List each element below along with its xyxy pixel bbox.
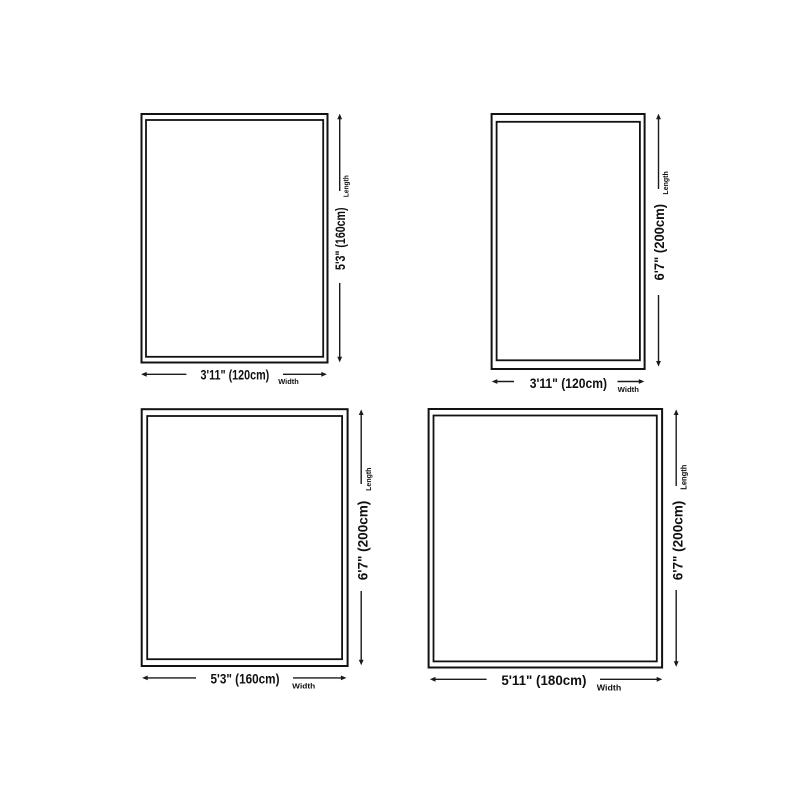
svg-text:Length: Length [661,171,670,195]
svg-text:Length: Length [342,175,351,197]
svg-text:Length: Length [679,465,688,490]
svg-text:Width: Width [618,385,640,394]
svg-text:6'7" (200cm): 6'7" (200cm) [356,501,371,581]
svg-text:Width: Width [597,682,622,692]
svg-text:Width: Width [292,682,315,691]
svg-text:5'3" (160cm): 5'3" (160cm) [211,671,280,686]
svg-text:6'7" (200cm): 6'7" (200cm) [671,501,686,581]
svg-text:Width: Width [278,377,299,386]
svg-text:3'11" (120cm): 3'11" (120cm) [530,376,607,391]
svg-text:5'11" (180cm): 5'11" (180cm) [501,673,586,688]
svg-text:6'7" (200cm): 6'7" (200cm) [652,204,667,281]
svg-text:5'3" (160cm): 5'3" (160cm) [333,207,348,270]
svg-text:Length: Length [364,467,373,491]
svg-text:3'11" (120cm): 3'11" (120cm) [201,368,270,383]
